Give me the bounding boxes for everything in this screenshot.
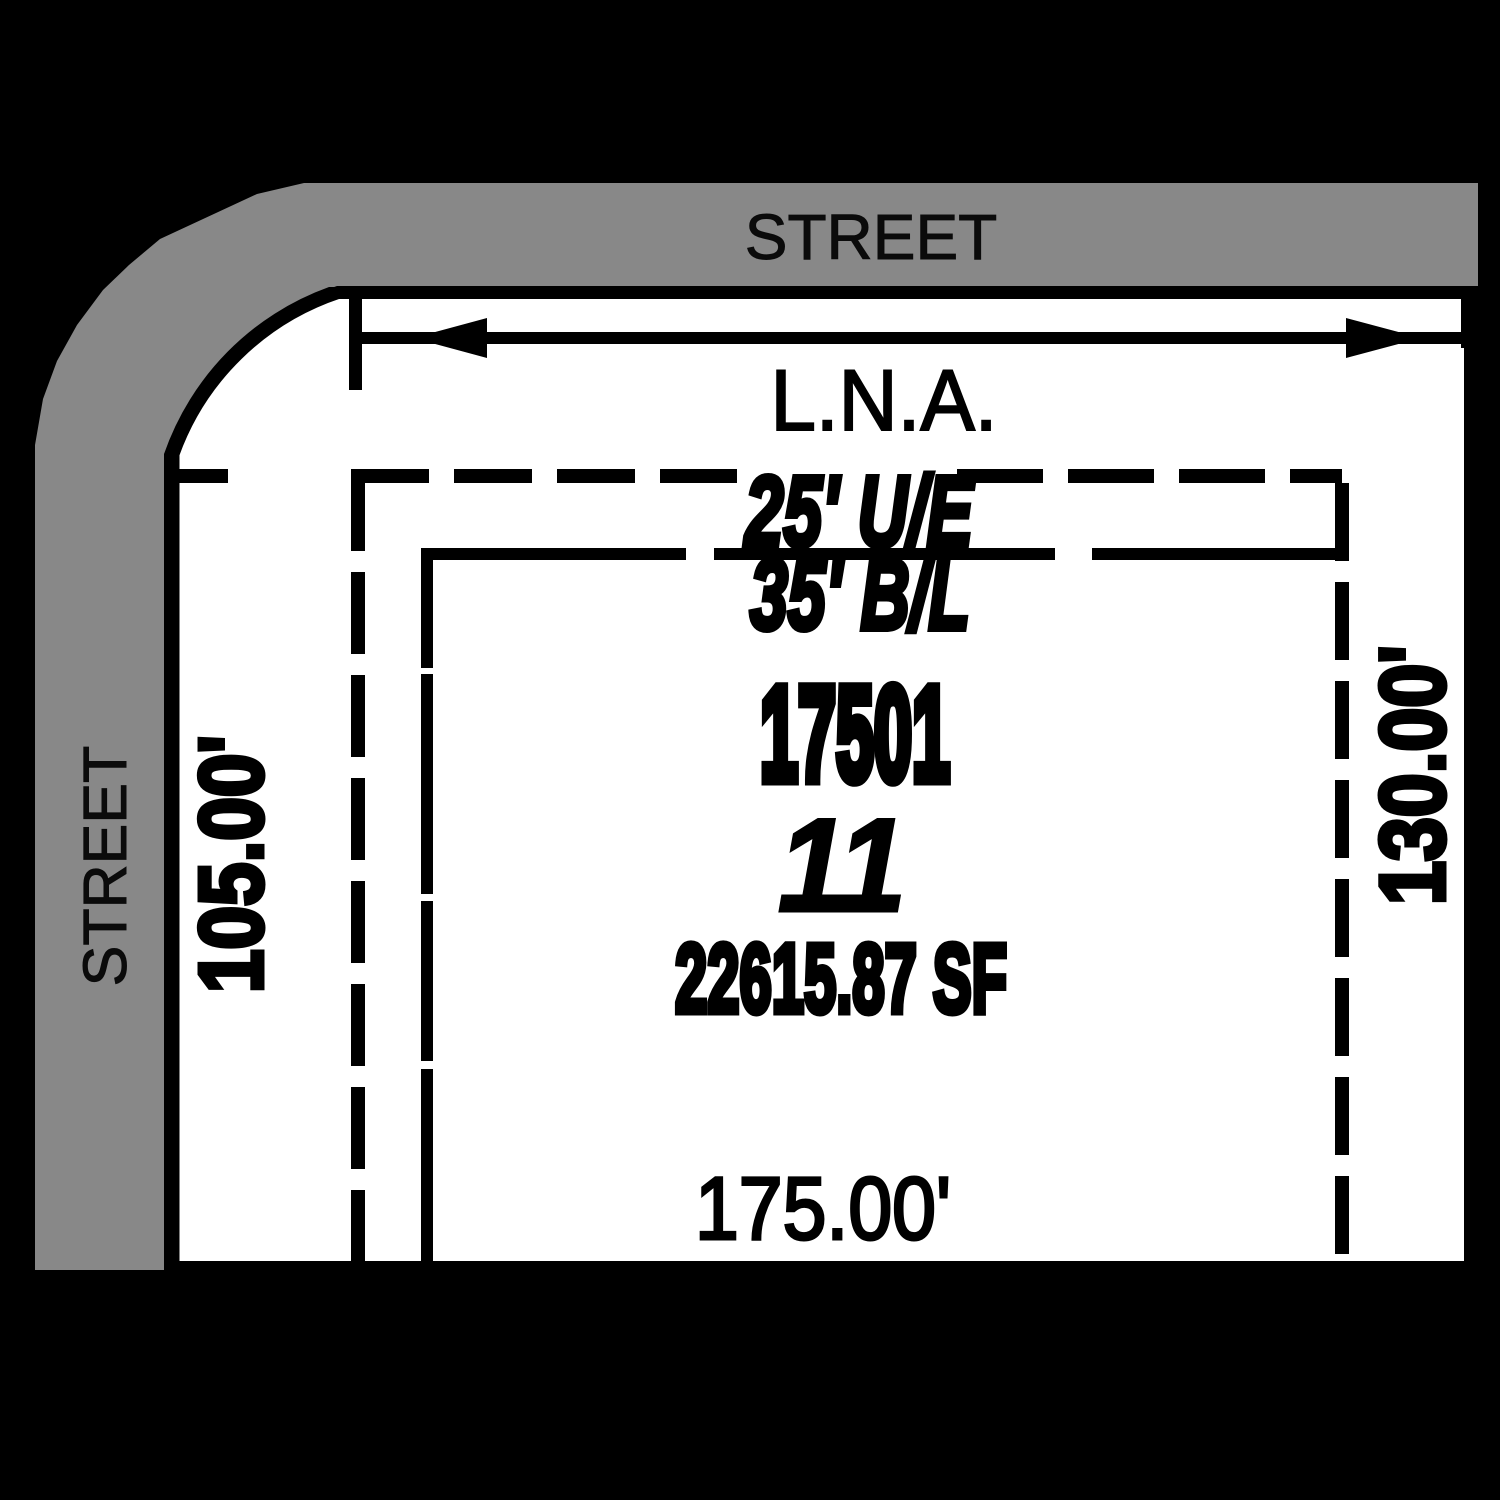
svg-text:35' B/L: 35' B/L xyxy=(750,539,970,651)
svg-text:130.00': 130.00' xyxy=(1362,645,1464,905)
svg-text:175.00': 175.00' xyxy=(695,1158,951,1258)
svg-text:L.N.A.: L.N.A. xyxy=(771,353,998,449)
svg-text:22615.87 SF: 22615.87 SF xyxy=(675,924,1007,1033)
svg-text:105.00': 105.00' xyxy=(182,735,282,993)
svg-text:STREET: STREET xyxy=(71,746,139,987)
svg-text:17501: 17501 xyxy=(760,660,950,809)
svg-text:11: 11 xyxy=(778,792,906,940)
svg-text:STREET: STREET xyxy=(745,201,997,273)
